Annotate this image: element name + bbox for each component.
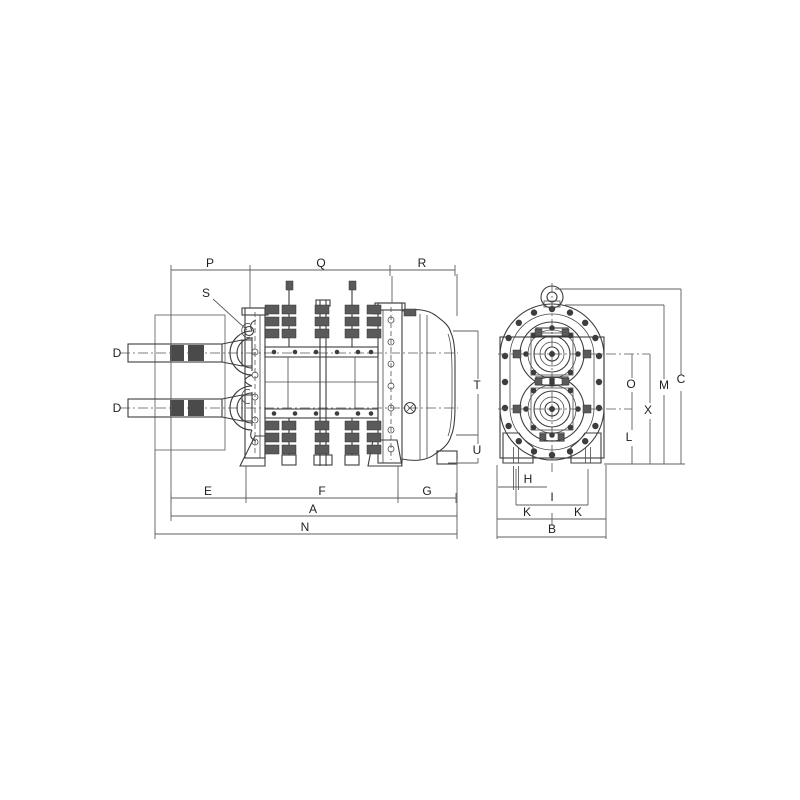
dim-label-q: Q bbox=[316, 256, 325, 270]
gear-cover-dome bbox=[402, 309, 457, 464]
dim-label-t: T bbox=[473, 378, 481, 392]
dim-label-o: O bbox=[626, 377, 635, 391]
dim-label-k-left: K bbox=[523, 505, 531, 519]
dim-label-h: H bbox=[524, 472, 533, 486]
upper-nut-stacks bbox=[265, 305, 381, 338]
end-view-dimensions: C M O L X H I K K B bbox=[497, 289, 686, 539]
dim-label-e: E bbox=[204, 484, 212, 498]
technical-drawing-page: P Q R S D D T U E F G A N bbox=[0, 0, 800, 800]
dim-label-r: R bbox=[418, 256, 427, 270]
side-view-dimensions: P Q R S D D T U E F G A N bbox=[113, 256, 482, 539]
dim-label-n: N bbox=[301, 520, 310, 534]
dim-label-i: I bbox=[550, 490, 553, 504]
left-foot bbox=[240, 436, 265, 466]
dim-label-k-right: K bbox=[574, 505, 582, 519]
dim-label-u: U bbox=[473, 443, 482, 457]
dim-label-f: F bbox=[318, 484, 325, 498]
phantom-box bbox=[155, 315, 225, 450]
lower-nut-stacks bbox=[265, 421, 381, 465]
dim-label-d-upper: D bbox=[113, 346, 122, 360]
dim-label-b: B bbox=[548, 522, 556, 536]
dim-label-a: A bbox=[309, 502, 317, 516]
dome-support-pad bbox=[437, 451, 457, 464]
dim-label-l: L bbox=[626, 430, 633, 444]
dim-label-m: M bbox=[659, 378, 669, 392]
dim-label-c: C bbox=[677, 372, 686, 386]
dim-label-g: G bbox=[422, 484, 431, 498]
headstock-waist bbox=[245, 375, 252, 386]
dim-label-d-lower: D bbox=[113, 401, 122, 415]
dim-label-x: X bbox=[644, 403, 652, 417]
vent-fitting bbox=[404, 309, 416, 316]
dim-label-s: S bbox=[202, 286, 210, 300]
dim-label-p: P bbox=[206, 256, 214, 270]
drawing-svg: P Q R S D D T U E F G A N bbox=[0, 0, 800, 800]
